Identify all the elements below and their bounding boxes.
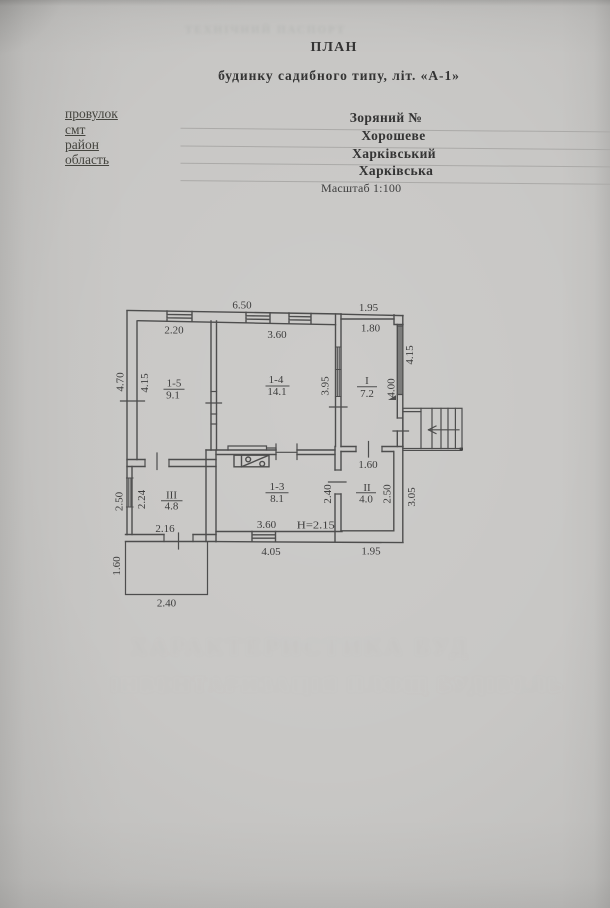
svg-text:I: I xyxy=(365,375,369,387)
svg-text:3.60: 3.60 xyxy=(267,329,287,341)
svg-text:II: II xyxy=(363,482,371,494)
svg-text:4.15: 4.15 xyxy=(139,373,151,393)
svg-text:3.95: 3.95 xyxy=(320,376,332,396)
svg-text:3.05: 3.05 xyxy=(406,487,418,507)
svg-text:1-3: 1-3 xyxy=(270,481,285,493)
svg-text:7.2: 7.2 xyxy=(360,388,374,400)
svg-text:14.1: 14.1 xyxy=(267,386,286,398)
svg-text:1-4: 1-4 xyxy=(269,374,284,386)
svg-text:1.95: 1.95 xyxy=(361,546,381,558)
svg-text:4.00: 4.00 xyxy=(386,378,398,398)
svg-text:2.40: 2.40 xyxy=(322,484,334,504)
svg-text:1.95: 1.95 xyxy=(359,302,379,314)
svg-text:3.60: 3.60 xyxy=(257,519,277,531)
svg-text:2.50: 2.50 xyxy=(114,491,126,511)
svg-text:2.16: 2.16 xyxy=(155,523,175,535)
svg-text:9.1: 9.1 xyxy=(166,390,180,402)
svg-text:4.05: 4.05 xyxy=(261,546,281,558)
svg-text:2.40: 2.40 xyxy=(157,598,177,610)
svg-text:4.15: 4.15 xyxy=(404,345,416,365)
svg-text:8.1: 8.1 xyxy=(270,493,284,505)
svg-text:4.8: 4.8 xyxy=(165,501,179,513)
svg-text:4.70: 4.70 xyxy=(115,372,127,392)
svg-text:H=2.15: H=2.15 xyxy=(297,520,336,532)
svg-text:2.50: 2.50 xyxy=(382,484,394,504)
svg-text:1.60: 1.60 xyxy=(111,556,123,576)
svg-text:1.60: 1.60 xyxy=(358,459,378,471)
svg-text:1.80: 1.80 xyxy=(361,323,381,335)
svg-text:2.24: 2.24 xyxy=(136,489,148,509)
svg-text:1-5: 1-5 xyxy=(167,378,182,390)
svg-text:2.20: 2.20 xyxy=(164,325,184,337)
svg-text:4.0: 4.0 xyxy=(359,494,373,506)
svg-text:6.50: 6.50 xyxy=(232,300,252,312)
